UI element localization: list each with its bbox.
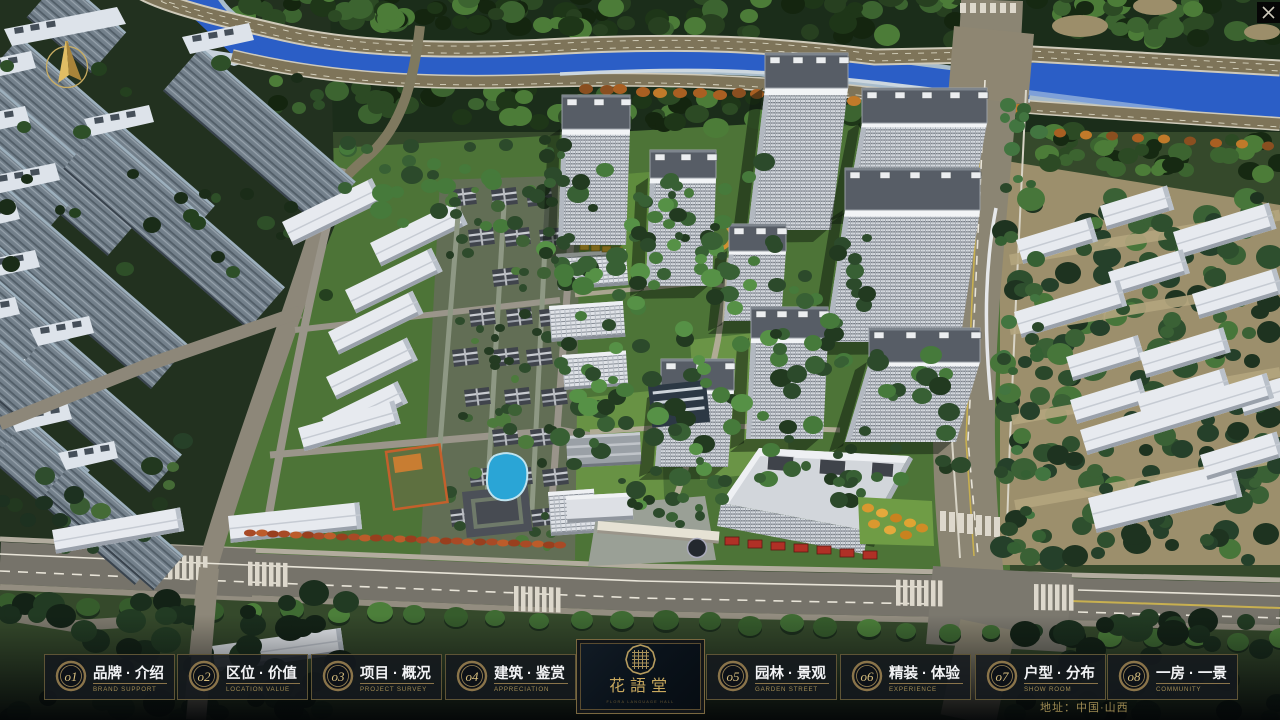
svg-text:o2: o2 xyxy=(198,669,212,684)
svg-text:o8: o8 xyxy=(1128,669,1142,684)
svg-text:FLORA LANGUAGE HALL: FLORA LANGUAGE HALL xyxy=(607,700,675,704)
svg-text:o1: o1 xyxy=(65,669,78,684)
svg-text:o3: o3 xyxy=(332,669,346,684)
svg-text:花語堂: 花語堂 xyxy=(609,677,672,695)
svg-text:o6: o6 xyxy=(861,669,875,684)
svg-text:o4: o4 xyxy=(466,669,480,684)
svg-text:o7: o7 xyxy=(996,669,1010,684)
svg-text:o5: o5 xyxy=(727,669,741,684)
